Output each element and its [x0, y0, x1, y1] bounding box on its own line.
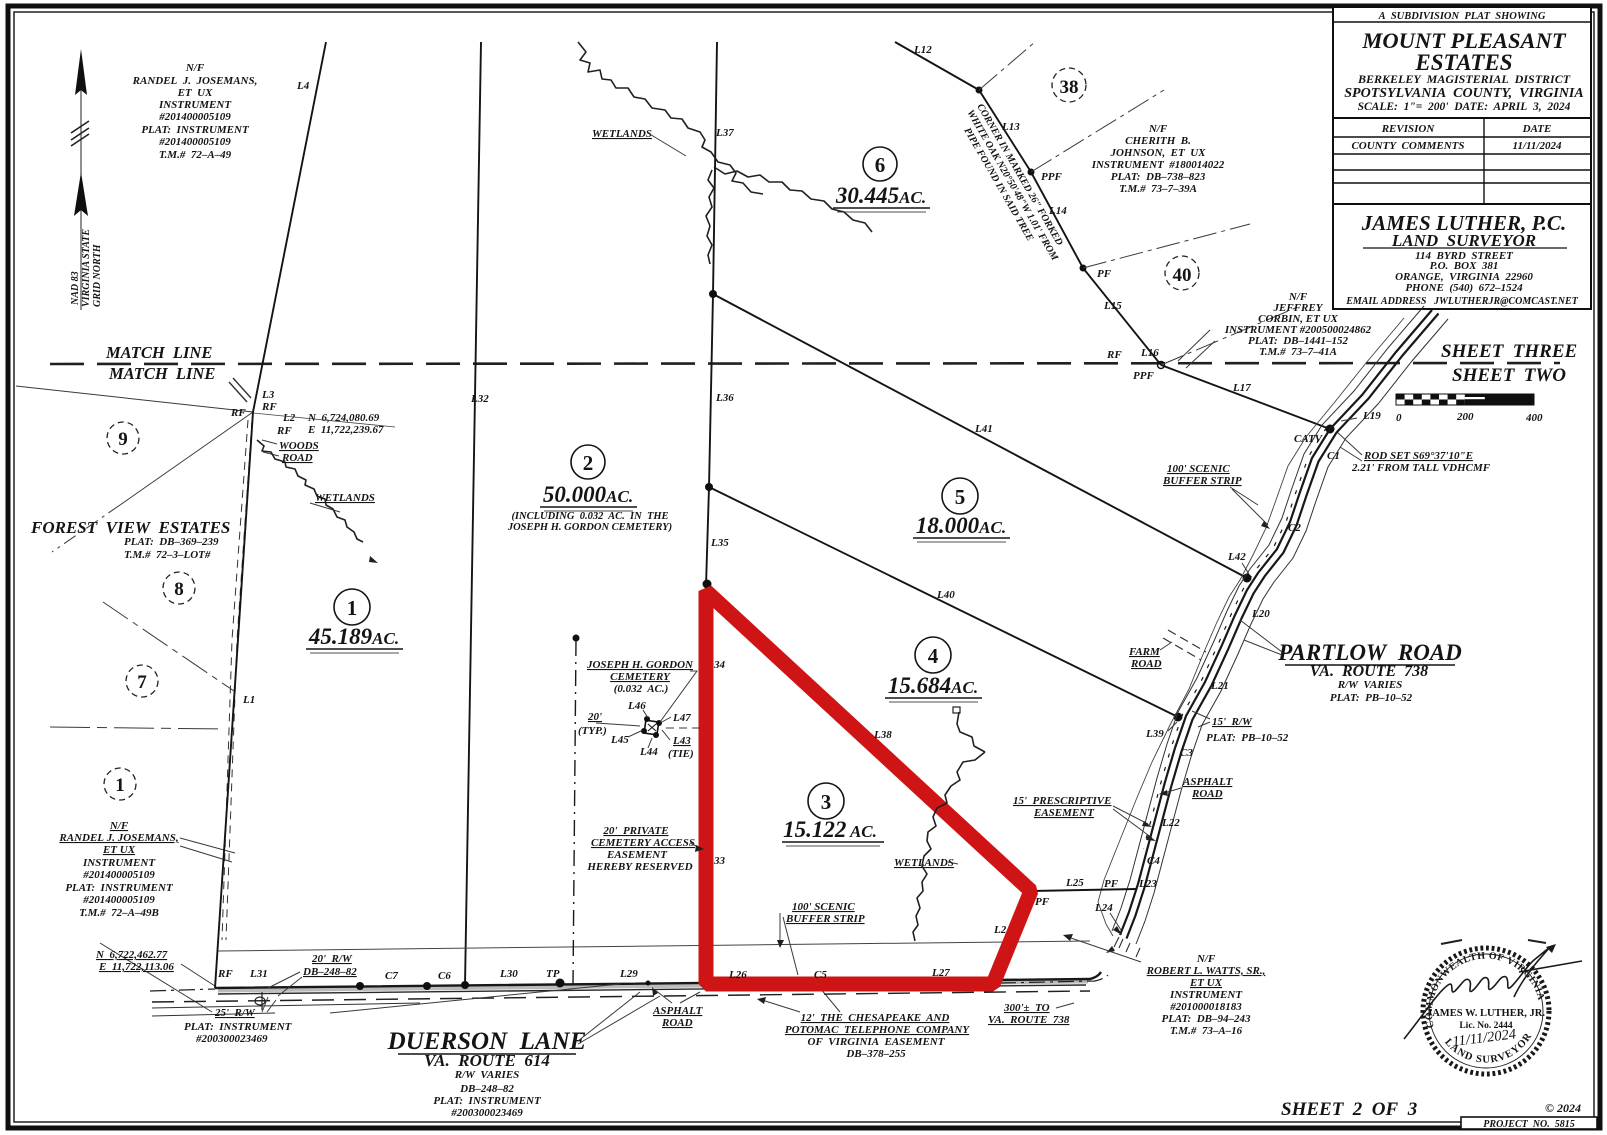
- svg-text:INSTRUMENT: INSTRUMENT: [158, 99, 232, 111]
- svg-text:6: 6: [875, 153, 886, 177]
- svg-text:ET UX: ET UX: [102, 844, 136, 856]
- svg-text:#201400005109: #201400005109: [158, 136, 231, 148]
- svg-text:SHEET 2 OF 3: SHEET 2 OF 3: [1281, 1099, 1417, 1120]
- svg-text:EASEMENT: EASEMENT: [606, 849, 668, 861]
- svg-text:4: 4: [928, 644, 939, 668]
- svg-text:T.M.# 73–A–16: T.M.# 73–A–16: [1170, 1025, 1243, 1037]
- svg-text:L2: L2: [282, 412, 296, 424]
- svg-text:T.M.# 73–7–39A: T.M.# 73–7–39A: [1119, 183, 1197, 195]
- svg-text:JOSEPH H. GORDON CEMETERY): JOSEPH H. GORDON CEMETERY): [507, 522, 672, 533]
- svg-text:L40: L40: [936, 589, 955, 601]
- svg-text:VA. ROUTE 738: VA. ROUTE 738: [1310, 663, 1428, 680]
- svg-text:PLAT: PB–10–52: PLAT: PB–10–52: [1330, 692, 1413, 704]
- svg-text:WOODS: WOODS: [279, 440, 319, 452]
- svg-text:PLAT: DB–94–243: PLAT: DB–94–243: [1161, 1013, 1251, 1025]
- svg-text:L30: L30: [499, 968, 518, 980]
- svg-text:L45: L45: [610, 734, 629, 746]
- svg-text:COUNTY COMMENTS: COUNTY COMMENTS: [1351, 140, 1464, 152]
- svg-text:3: 3: [821, 790, 832, 814]
- svg-text:20' R/W: 20' R/W: [311, 953, 353, 965]
- svg-text:DB–248–82: DB–248–82: [459, 1083, 514, 1095]
- svg-text:5: 5: [955, 485, 966, 509]
- svg-text:ET UX: ET UX: [1189, 977, 1223, 989]
- svg-text:POTOMAC TELEPHONE COMPANY: POTOMAC TELEPHONE COMPANY: [785, 1024, 970, 1036]
- svg-text:L36: L36: [715, 392, 734, 404]
- svg-text:DATE: DATE: [1522, 123, 1552, 135]
- svg-text:100' SCENIC: 100' SCENIC: [1167, 463, 1230, 475]
- svg-text:(TYP.): (TYP.): [578, 725, 607, 737]
- svg-text:TP: TP: [546, 968, 560, 980]
- svg-text:PLAT: INSTRUMENT: PLAT: INSTRUMENT: [433, 1095, 542, 1107]
- svg-text:PHONE (540) 672–1524: PHONE (540) 672–1524: [1405, 282, 1523, 294]
- svg-text:SHEET THREE: SHEET THREE: [1441, 341, 1577, 362]
- svg-text:0: 0: [1396, 412, 1402, 424]
- svg-text:(TIE): (TIE): [668, 748, 694, 760]
- svg-text:#201400005109: #201400005109: [158, 111, 231, 123]
- svg-text:L37: L37: [715, 127, 734, 139]
- svg-text:20': 20': [587, 711, 602, 723]
- svg-text:L1: L1: [242, 694, 255, 706]
- svg-text:L14: L14: [1048, 205, 1067, 217]
- svg-text:FOREST VIEW ESTATES: FOREST VIEW ESTATES: [30, 518, 230, 537]
- svg-text:VA. ROUTE 738: VA. ROUTE 738: [988, 1014, 1070, 1026]
- svg-text:L17: L17: [1232, 382, 1251, 394]
- svg-text:MATCH LINE: MATCH LINE: [108, 364, 215, 383]
- svg-text:BUFFER STRIP: BUFFER STRIP: [785, 913, 865, 925]
- svg-text:EMAIL ADDRESS JWLUTHERJR@COM: EMAIL ADDRESS JWLUTHERJR@COMCAST.NET: [1345, 296, 1579, 307]
- svg-text:L20: L20: [1251, 608, 1270, 620]
- svg-text:R/W VARIES: R/W VARIES: [454, 1069, 520, 1081]
- svg-text:100' SCENIC: 100' SCENIC: [792, 901, 855, 913]
- svg-text:L12: L12: [913, 44, 932, 56]
- svg-text:L42: L42: [1227, 551, 1246, 563]
- svg-text:PLAT: PB–10–52: PLAT: PB–10–52: [1206, 732, 1289, 744]
- svg-text:C3: C3: [1180, 747, 1193, 759]
- svg-text:CEMETERY: CEMETERY: [610, 671, 671, 683]
- svg-text:ET UX: ET UX: [177, 87, 214, 99]
- svg-text:N 6,722,462.77: N 6,722,462.77: [95, 949, 168, 961]
- svg-text:C4: C4: [1147, 855, 1160, 867]
- svg-text:T.M.# 72–A–49B: T.M.# 72–A–49B: [79, 907, 159, 919]
- svg-text:PLAT: DB–738–823: PLAT: DB–738–823: [1111, 171, 1206, 183]
- svg-text:L24: L24: [1094, 902, 1113, 914]
- svg-text:ASPHALT: ASPHALT: [1182, 776, 1234, 788]
- svg-text:38: 38: [1060, 77, 1079, 98]
- svg-text:L38: L38: [873, 729, 892, 741]
- svg-text:(0.032 AC.): (0.032 AC.): [614, 683, 669, 695]
- svg-text:#201400005109: #201400005109: [82, 894, 155, 906]
- svg-text:DB–248–82: DB–248–82: [302, 966, 357, 978]
- svg-text:E 11,722,113.06: E 11,722,113.06: [98, 961, 174, 973]
- svg-text:2: 2: [583, 451, 594, 475]
- svg-text:33: 33: [713, 855, 726, 867]
- svg-text:L15: L15: [1103, 300, 1122, 312]
- svg-text:RF: RF: [261, 401, 277, 413]
- svg-text:L22: L22: [1161, 817, 1180, 829]
- svg-text:RF: RF: [217, 968, 233, 980]
- svg-text:© 2024: © 2024: [1545, 1101, 1581, 1115]
- svg-text:400: 400: [1525, 412, 1543, 424]
- svg-text:L39: L39: [1145, 728, 1164, 740]
- svg-text:L16: L16: [1140, 347, 1159, 359]
- svg-text:PLAT: DB–369–239: PLAT: DB–369–239: [124, 536, 219, 548]
- svg-text:12' THE CHESAPEAKE AND: 12' THE CHESAPEAKE AND: [801, 1012, 950, 1024]
- svg-text:BUFFER STRIP: BUFFER STRIP: [1162, 475, 1242, 487]
- svg-text:L21: L21: [1210, 680, 1229, 692]
- svg-text:#200300023469: #200300023469: [195, 1033, 268, 1045]
- svg-text:ROBERT L. WATTS, SR.,: ROBERT L. WATTS, SR.,: [1146, 965, 1266, 977]
- svg-text:(INCLUDING 0.032 AC. IN TH: (INCLUDING 0.032 AC. IN THE: [511, 511, 668, 522]
- svg-text:40: 40: [1173, 265, 1192, 286]
- svg-text:L25: L25: [1065, 877, 1084, 889]
- svg-text:34: 34: [713, 659, 726, 671]
- svg-text:9: 9: [118, 429, 128, 450]
- svg-text:R/W VARIES: R/W VARIES: [1337, 679, 1403, 691]
- svg-text:N/F: N/F: [185, 62, 205, 74]
- svg-text:PF: PF: [1097, 268, 1112, 280]
- svg-text:L35: L35: [710, 537, 729, 549]
- svg-text:JAMES W. LUTHER, JR.: JAMES W. LUTHER, JR.: [1427, 1008, 1545, 1019]
- svg-text:ASPHALT: ASPHALT: [652, 1005, 704, 1017]
- svg-text:T.M.# 72–3–LOT#: T.M.# 72–3–LOT#: [124, 549, 211, 561]
- svg-text:MATCH LINE: MATCH LINE: [105, 343, 212, 362]
- svg-text:L47: L47: [672, 712, 691, 724]
- svg-text:#201400005109: #201400005109: [82, 869, 155, 881]
- svg-text:C7: C7: [385, 970, 398, 982]
- svg-text:NAD 83: NAD 83: [70, 271, 81, 306]
- svg-text:VA. ROUTE 614: VA. ROUTE 614: [424, 1051, 550, 1070]
- svg-text:2.21' FROM TALL VDHCMF: 2.21' FROM TALL VDHCMF: [1351, 462, 1491, 474]
- svg-text:C2: C2: [1288, 522, 1301, 534]
- svg-text:ROD SET S69°37'10"E: ROD SET S69°37'10"E: [1363, 450, 1473, 462]
- svg-text:RF: RF: [230, 407, 246, 419]
- svg-text:JOHNSON, ET UX: JOHNSON, ET UX: [1109, 147, 1206, 159]
- svg-text:ROAD: ROAD: [1130, 658, 1162, 670]
- svg-text:LAND SURVEYOR: LAND SURVEYOR: [1391, 231, 1536, 250]
- svg-text:15' R/W: 15' R/W: [1212, 716, 1253, 728]
- svg-text:200: 200: [1456, 411, 1474, 423]
- svg-text:15' PRESCRIPTIVE: 15' PRESCRIPTIVE: [1013, 795, 1111, 807]
- svg-text:L32: L32: [470, 393, 489, 405]
- svg-text:PF: PF: [1104, 878, 1119, 890]
- svg-text:L3: L3: [261, 389, 275, 401]
- svg-text:25' R/W: 25' R/W: [214, 1007, 256, 1019]
- svg-text:OF VIRGINIA EASEMENT: OF VIRGINIA EASEMENT: [808, 1036, 946, 1048]
- svg-text:VIRGINIA STATE: VIRGINIA STATE: [81, 229, 92, 307]
- svg-text:RANDEL J. JOSEMANS,: RANDEL J. JOSEMANS,: [58, 832, 178, 844]
- svg-text:8: 8: [174, 579, 184, 600]
- svg-text:PLAT: INSTRUMENT: PLAT: INSTRUMENT: [141, 124, 250, 136]
- svg-text:PPF: PPF: [1041, 171, 1062, 183]
- svg-text:INSTRUMENT: INSTRUMENT: [1169, 989, 1243, 1001]
- svg-text:E 11,722,239.67: E 11,722,239.67: [307, 424, 384, 436]
- svg-text:RF: RF: [1106, 349, 1122, 361]
- svg-text:FARM: FARM: [1128, 646, 1161, 658]
- svg-text:RF: RF: [276, 425, 292, 437]
- svg-text:L29: L29: [619, 968, 638, 980]
- svg-text:RANDEL J. JOSEMANS,: RANDEL J. JOSEMANS,: [132, 75, 258, 87]
- svg-text:PARTLOW ROAD: PARTLOW ROAD: [1277, 640, 1462, 665]
- svg-text:T.M.# 72–A–49: T.M.# 72–A–49: [159, 149, 232, 161]
- svg-text:PPF: PPF: [1133, 370, 1154, 382]
- svg-text:20' PRIVATE: 20' PRIVATE: [602, 825, 668, 837]
- svg-text:GRID NORTH: GRID NORTH: [92, 243, 103, 307]
- svg-text:PLAT: INSTRUMENT: PLAT: INSTRUMENT: [65, 882, 174, 894]
- svg-text:11/11/2024: 11/11/2024: [1513, 140, 1562, 152]
- svg-text:SPOTSYLVANIA COUNTY, VIRGINI: SPOTSYLVANIA COUNTY, VIRGINIA: [1344, 86, 1583, 101]
- svg-text:SHEET TWO: SHEET TWO: [1452, 365, 1566, 386]
- svg-text:REVISION: REVISION: [1381, 123, 1436, 135]
- svg-text:N/F: N/F: [1196, 953, 1216, 965]
- svg-text:7: 7: [137, 672, 147, 693]
- svg-text:L19: L19: [1362, 410, 1381, 422]
- svg-text:L13: L13: [1001, 121, 1020, 133]
- svg-text:#200300023469: #200300023469: [450, 1107, 523, 1119]
- svg-text:CEMETERY ACCESS: CEMETERY ACCESS: [591, 837, 695, 849]
- svg-text:L26: L26: [728, 969, 747, 981]
- svg-text:1: 1: [347, 596, 358, 620]
- svg-text:A SUBDIVISION PLAT SHOWING: A SUBDIVISION PLAT SHOWING: [1378, 11, 1546, 22]
- svg-text:INSTRUMENT: INSTRUMENT: [82, 857, 156, 869]
- svg-text:ROAD: ROAD: [661, 1017, 693, 1029]
- svg-text:PROJECT NO. 5815: PROJECT NO. 5815: [1483, 1119, 1574, 1130]
- svg-text:L4: L4: [296, 80, 310, 92]
- svg-text:CHERITH B.: CHERITH B.: [1125, 135, 1191, 147]
- svg-text:L2: L2: [993, 924, 1007, 936]
- svg-text:HEREBY RESERVED: HEREBY RESERVED: [586, 861, 692, 873]
- svg-text:C5: C5: [814, 969, 827, 981]
- svg-text:C1: C1: [1327, 450, 1340, 462]
- svg-text:DB–378–255: DB–378–255: [845, 1048, 906, 1060]
- svg-text:EASEMENT: EASEMENT: [1033, 807, 1095, 819]
- svg-text:N/F: N/F: [109, 820, 129, 832]
- svg-text:L23: L23: [1138, 878, 1157, 890]
- svg-text:300'± TO: 300'± TO: [1003, 1002, 1050, 1014]
- svg-text:WETLANDS: WETLANDS: [592, 128, 652, 140]
- svg-text:L31: L31: [249, 968, 268, 980]
- svg-text:JOSEPH H. GORDON: JOSEPH H. GORDON: [586, 659, 694, 671]
- svg-text:N/F: N/F: [1148, 123, 1168, 135]
- svg-text:L43: L43: [672, 735, 691, 747]
- svg-text:CATV: CATV: [1294, 433, 1324, 445]
- svg-text:T.M.# 73–7–41A: T.M.# 73–7–41A: [1259, 346, 1337, 358]
- svg-text:L27: L27: [931, 967, 950, 979]
- svg-text:PLAT: INSTRUMENT: PLAT: INSTRUMENT: [184, 1021, 293, 1033]
- svg-text:BERKELEY MAGISTERIAL DISTRIC: BERKELEY MAGISTERIAL DISTRICT: [1357, 72, 1571, 86]
- svg-text:C6: C6: [438, 970, 451, 982]
- svg-text:L41: L41: [974, 423, 993, 435]
- svg-text:ROAD: ROAD: [1191, 788, 1223, 800]
- svg-text:#201000018183: #201000018183: [1169, 1001, 1242, 1013]
- svg-text:1: 1: [115, 775, 125, 796]
- svg-text:INSTRUMENT #180014022: INSTRUMENT #180014022: [1091, 159, 1225, 171]
- svg-text:SCALE: 1"= 200' DATE: APRI: SCALE: 1"= 200' DATE: APRIL 3, 2024: [1358, 101, 1571, 113]
- svg-text:PF: PF: [1035, 896, 1050, 908]
